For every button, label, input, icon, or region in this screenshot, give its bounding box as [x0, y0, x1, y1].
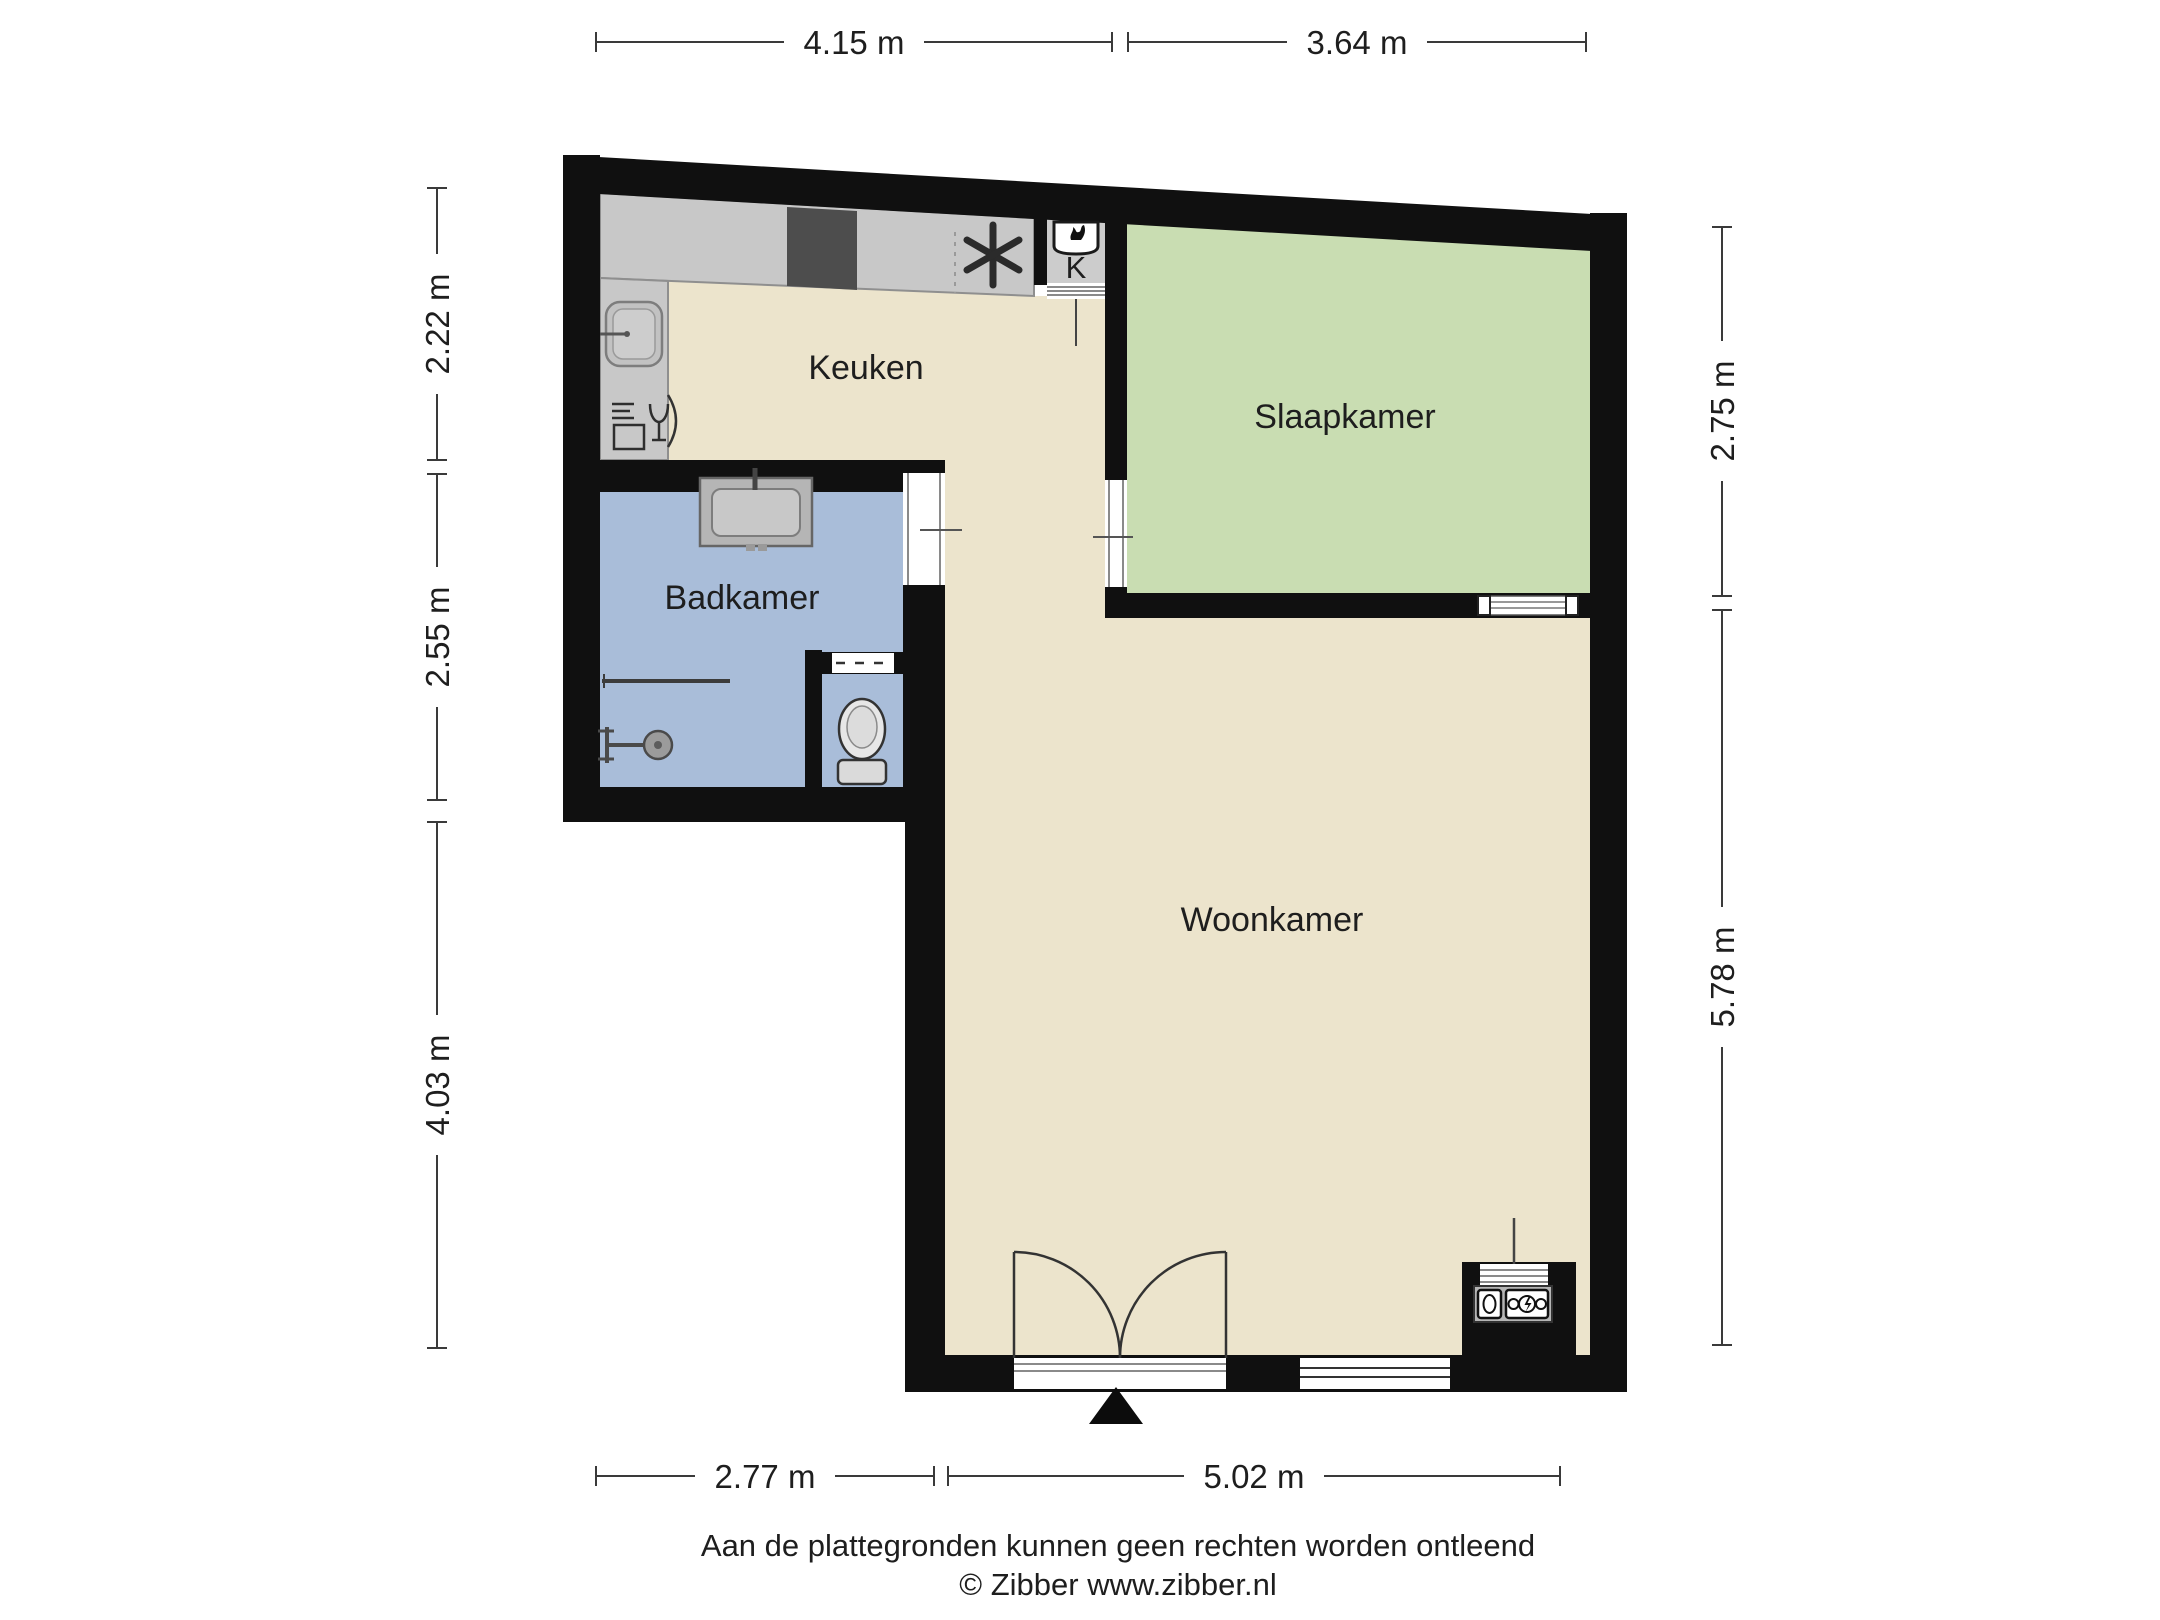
- svg-text:2.75 m: 2.75 m: [1704, 361, 1741, 462]
- room-label-kitchen: Keuken: [808, 349, 923, 387]
- svg-text:2.22 m: 2.22 m: [419, 274, 456, 375]
- corridor-floor: [945, 460, 1105, 1355]
- svg-text:2.55 m: 2.55 m: [419, 587, 456, 688]
- dim-top-1: 4.15 m: [596, 23, 1112, 61]
- wall-right: [1590, 213, 1627, 1392]
- svg-text:4.15 m: 4.15 m: [804, 24, 905, 61]
- dim-left-1: 2.22 m: [418, 188, 456, 460]
- dim-right-2: 5.78 m: [1703, 610, 1741, 1345]
- dim-bottom-1: 2.77 m: [596, 1457, 934, 1495]
- wall-closet-left: [1034, 205, 1047, 285]
- toilet-icon: [838, 699, 886, 784]
- wall-living-left: [905, 787, 945, 1392]
- toilet-door: [832, 653, 894, 673]
- room-label-bathroom: Badkamer: [665, 579, 820, 617]
- svg-text:4.03 m: 4.03 m: [419, 1035, 456, 1136]
- water-meter-icon: [1478, 1290, 1501, 1318]
- dim-bottom-2: 5.02 m: [948, 1457, 1560, 1495]
- meter-vent: [1480, 1264, 1548, 1286]
- svg-text:3.64 m: 3.64 m: [1307, 24, 1408, 61]
- cooktop-icon: [787, 207, 857, 290]
- floorplan-canvas: K Keuken Slaapkamer Badkamer Woonka: [0, 0, 2160, 1620]
- closet-label: K: [1066, 250, 1087, 285]
- svg-text:5.02 m: 5.02 m: [1204, 1458, 1305, 1495]
- wall-bathroom-bottom: [563, 787, 945, 822]
- wall-bottom: [905, 1355, 1627, 1392]
- sink-icon: [600, 302, 662, 366]
- electricity-meter-icon: [1506, 1290, 1548, 1318]
- dim-left-2: 2.55 m: [418, 474, 456, 800]
- washbasin-icon: [700, 468, 812, 551]
- footer-disclaimer: Aan de plattegronden kunnen geen rechten…: [701, 1528, 1535, 1563]
- svg-text:2.77 m: 2.77 m: [715, 1458, 816, 1495]
- room-living-floor: [1105, 618, 1590, 1355]
- wall-toilet-vertical: [805, 650, 822, 787]
- sliding-door-icon: [1478, 596, 1578, 615]
- dim-top-2: 3.64 m: [1128, 23, 1586, 61]
- room-label-bedroom: Slaapkamer: [1254, 398, 1435, 436]
- room-kitchen-floor-east: [1034, 296, 1105, 460]
- room-floors: [600, 213, 1590, 1355]
- floorplan-page: K Keuken Slaapkamer Badkamer Woonka: [0, 0, 2160, 1620]
- svg-text:5.78 m: 5.78 m: [1704, 927, 1741, 1028]
- room-label-living: Woonkamer: [1181, 901, 1364, 939]
- entrance-arrow-icon: [1089, 1387, 1143, 1424]
- window-icon: [1300, 1358, 1450, 1389]
- dim-left-3: 4.03 m: [418, 822, 456, 1348]
- footer-credit: © Zibber www.zibber.nl: [959, 1567, 1276, 1602]
- dim-right-1: 2.75 m: [1703, 227, 1741, 596]
- footer: Aan de plattegronden kunnen geen rechten…: [701, 1528, 1535, 1602]
